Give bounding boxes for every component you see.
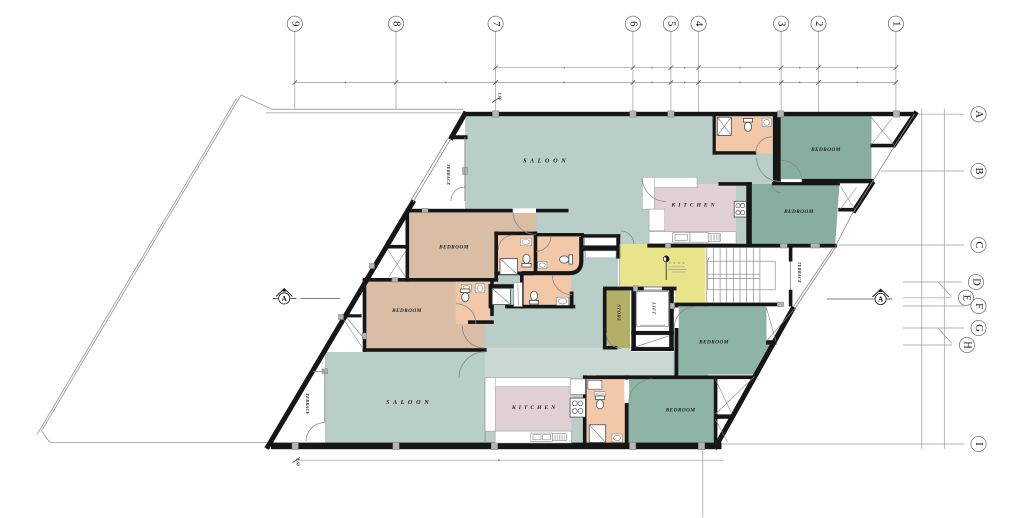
svg-text:S A L O O N: S A L O O N xyxy=(523,158,567,165)
svg-text:STORE: STORE xyxy=(617,304,622,321)
svg-text:G: G xyxy=(973,324,984,332)
svg-text:5: 5 xyxy=(665,21,676,26)
svg-text:BEDROOM: BEDROOM xyxy=(783,209,814,215)
svg-text:BEDROOM: BEDROOM xyxy=(698,340,729,346)
svg-text:8: 8 xyxy=(391,21,402,26)
svg-text:E: E xyxy=(961,295,972,301)
svg-text:TERRACE: TERRACE xyxy=(305,393,310,414)
svg-text:TERRACE: TERRACE xyxy=(446,164,451,185)
svg-text:I: I xyxy=(973,442,984,446)
svg-text:9: 9 xyxy=(289,21,300,26)
svg-text:H: H xyxy=(962,341,973,349)
svg-text:C: C xyxy=(973,241,984,248)
svg-text:A: A xyxy=(878,295,883,303)
svg-text:1.60: 1.60 xyxy=(498,93,503,101)
svg-text:1: 1 xyxy=(890,21,901,26)
svg-text:BEDROOM: BEDROOM xyxy=(810,147,841,153)
svg-text:BEDROOM: BEDROOM xyxy=(665,408,696,414)
svg-text:F: F xyxy=(973,303,984,309)
svg-text:B: B xyxy=(973,167,984,174)
svg-text:K I T C H E N: K I T C H E N xyxy=(671,202,716,208)
svg-text:TERRACE: TERRACE xyxy=(797,262,802,283)
svg-text:1.60: 1.60 xyxy=(296,458,301,466)
svg-text:6: 6 xyxy=(627,21,638,26)
svg-text:4: 4 xyxy=(693,21,704,27)
svg-text:K I T C H E N: K I T C H E N xyxy=(511,405,556,411)
svg-text:S A L O O N: S A L O O N xyxy=(386,399,430,406)
svg-text:3: 3 xyxy=(776,21,787,26)
svg-text:D: D xyxy=(971,278,982,286)
svg-text:A: A xyxy=(973,110,984,118)
svg-text:A: A xyxy=(282,295,287,303)
svg-text:7: 7 xyxy=(490,21,501,26)
svg-text:2: 2 xyxy=(813,21,824,26)
svg-text:LIFT: LIFT xyxy=(652,301,657,314)
svg-text:BEDROOM: BEDROOM xyxy=(438,245,469,251)
svg-text:BEDROOM: BEDROOM xyxy=(391,308,422,314)
